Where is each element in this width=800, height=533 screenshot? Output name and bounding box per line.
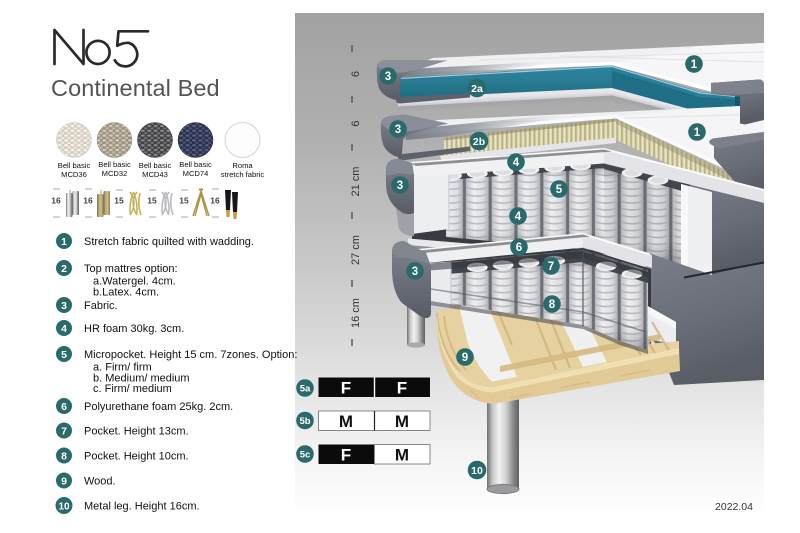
svg-text:1: 1	[691, 59, 698, 71]
svg-text:10: 10	[58, 501, 70, 512]
svg-text:M: M	[339, 412, 353, 431]
svg-text:2b: 2b	[473, 136, 485, 148]
svg-text:4: 4	[61, 323, 67, 335]
svg-text:M: M	[395, 412, 409, 431]
svg-text:4: 4	[513, 157, 520, 169]
svg-text:7: 7	[548, 261, 554, 273]
svg-text:6: 6	[61, 401, 67, 413]
svg-text:16: 16	[210, 196, 220, 206]
svg-text:4: 4	[515, 211, 522, 223]
svg-text:2022.04: 2022.04	[715, 501, 753, 513]
svg-text:16: 16	[51, 196, 61, 206]
svg-text:2a: 2a	[471, 83, 483, 95]
svg-text:3: 3	[61, 300, 67, 312]
svg-text:27 cm: 27 cm	[350, 235, 362, 265]
svg-text:6: 6	[516, 242, 522, 254]
svg-text:Pocket. Height 13cm.: Pocket. Height 13cm.	[84, 426, 189, 438]
svg-text:10: 10	[471, 465, 483, 477]
svg-text:Polyurethane foam 25kg. 2cm.: Polyurethane foam 25kg. 2cm.	[84, 401, 233, 413]
svg-text:3: 3	[385, 71, 391, 83]
svg-text:6: 6	[350, 120, 362, 126]
svg-text:5: 5	[556, 184, 563, 196]
svg-text:3: 3	[397, 180, 403, 192]
svg-text:6: 6	[350, 71, 362, 77]
svg-text:Stretch fabric quilted with wa: Stretch fabric quilted with wadding.	[84, 236, 254, 248]
svg-text:1: 1	[694, 127, 701, 139]
svg-text:16: 16	[83, 196, 93, 206]
svg-text:15: 15	[147, 196, 157, 206]
svg-text:Pocket. Height 10cm.: Pocket. Height 10cm.	[84, 451, 189, 463]
svg-text:5: 5	[61, 349, 67, 361]
svg-text:MCD43: MCD43	[142, 170, 168, 179]
svg-text:9: 9	[462, 352, 468, 364]
svg-text:21 cm: 21 cm	[350, 167, 362, 197]
svg-text:8: 8	[61, 450, 67, 462]
svg-text:8: 8	[549, 299, 556, 311]
svg-text:Continental Bed: Continental Bed	[51, 75, 220, 101]
svg-text:5c: 5c	[300, 450, 311, 461]
svg-text:9: 9	[61, 475, 67, 487]
svg-text:M: M	[395, 446, 409, 465]
svg-text:b.Latex. 4cm.: b.Latex. 4cm.	[93, 286, 159, 298]
svg-text:15: 15	[179, 196, 189, 206]
svg-text:Wood.: Wood.	[84, 476, 116, 488]
svg-text:15: 15	[114, 196, 124, 206]
svg-text:Bell basic: Bell basic	[139, 161, 172, 170]
svg-text:F: F	[341, 446, 351, 465]
svg-text:Metal leg. Height 16cm.: Metal leg. Height 16cm.	[84, 501, 200, 513]
svg-text:5a: 5a	[300, 384, 311, 395]
svg-text:Bell basic: Bell basic	[98, 160, 131, 169]
svg-text:3: 3	[412, 266, 418, 278]
svg-text:Micropocket. Height 15 cm. 7zo: Micropocket. Height 15 cm. 7zones. Optio…	[84, 349, 297, 361]
svg-text:MCD32: MCD32	[102, 169, 128, 178]
svg-text:2: 2	[61, 263, 67, 275]
svg-text:HR foam 30kg. 3cm.: HR foam 30kg. 3cm.	[84, 323, 184, 335]
svg-text:Bell basic: Bell basic	[58, 161, 91, 170]
svg-text:1: 1	[61, 236, 67, 248]
svg-text:7: 7	[61, 425, 67, 437]
svg-text:16 cm: 16 cm	[350, 298, 362, 328]
svg-text:3: 3	[395, 124, 401, 136]
svg-text:c. Firm/ medium: c. Firm/ medium	[93, 383, 172, 395]
svg-text:Bell basic: Bell basic	[179, 160, 212, 169]
svg-text:Roma: Roma	[232, 161, 253, 170]
svg-text:stretch fabric: stretch fabric	[221, 170, 265, 179]
svg-text:MCD74: MCD74	[183, 169, 209, 178]
svg-text:MCD36: MCD36	[61, 170, 87, 179]
svg-text:F: F	[341, 379, 351, 398]
svg-text:5b: 5b	[299, 416, 310, 427]
svg-text:Fabric.: Fabric.	[84, 300, 118, 312]
svg-text:Top mattres option:: Top mattres option:	[84, 263, 178, 275]
svg-text:F: F	[397, 379, 407, 398]
